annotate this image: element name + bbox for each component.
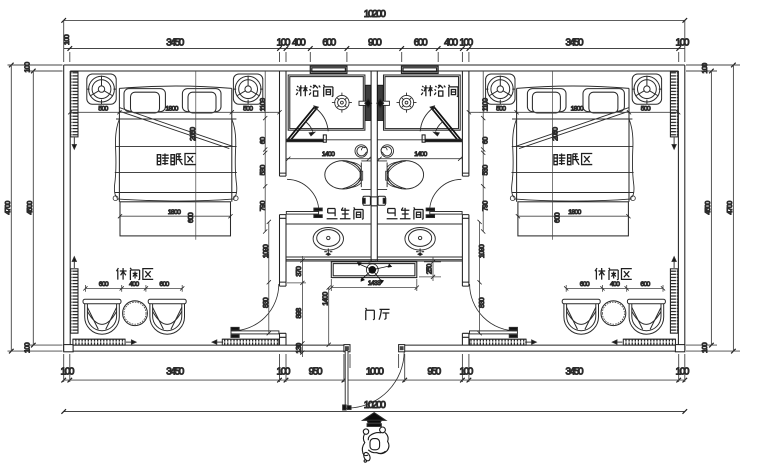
svg-text:500: 500	[496, 105, 506, 112]
svg-text:790: 790	[480, 201, 489, 212]
svg-text:4500: 4500	[25, 201, 34, 215]
svg-text:100: 100	[277, 37, 291, 48]
svg-text:2050: 2050	[188, 127, 197, 141]
svg-text:10200: 10200	[364, 400, 387, 411]
svg-text:100: 100	[62, 34, 71, 45]
svg-text:3450: 3450	[166, 37, 184, 48]
svg-text:600: 600	[159, 281, 169, 288]
svg-text:600: 600	[553, 212, 562, 223]
svg-text:3450: 3450	[166, 367, 184, 378]
svg-text:1090: 1090	[477, 244, 486, 258]
svg-text:1800: 1800	[165, 105, 178, 112]
svg-text:10200: 10200	[364, 9, 387, 20]
svg-text:400: 400	[292, 37, 306, 48]
svg-text:100: 100	[700, 63, 709, 74]
svg-text:100: 100	[23, 342, 32, 353]
svg-text:60: 60	[480, 137, 489, 144]
svg-text:400: 400	[610, 281, 620, 288]
svg-text:100: 100	[700, 342, 709, 353]
svg-text:100: 100	[23, 62, 32, 73]
svg-text:100: 100	[459, 367, 473, 378]
svg-text:4500: 4500	[703, 201, 712, 215]
svg-text:1800: 1800	[168, 209, 181, 216]
svg-text:530: 530	[258, 165, 267, 176]
svg-text:100: 100	[459, 37, 473, 48]
svg-text:1400: 1400	[321, 292, 330, 306]
svg-text:1090: 1090	[261, 244, 270, 258]
svg-text:4700: 4700	[3, 201, 12, 215]
svg-text:100: 100	[277, 367, 291, 378]
svg-text:790: 790	[258, 201, 267, 212]
svg-text:4700: 4700	[725, 201, 734, 215]
svg-text:500: 500	[98, 105, 108, 112]
svg-text:100: 100	[676, 37, 690, 48]
svg-text:600: 600	[640, 281, 650, 288]
svg-text:60: 60	[258, 137, 267, 144]
svg-text:900: 900	[368, 37, 382, 48]
svg-text:3450: 3450	[565, 367, 583, 378]
svg-text:400: 400	[129, 281, 139, 288]
svg-text:950: 950	[309, 367, 323, 378]
svg-text:1800: 1800	[568, 209, 581, 216]
svg-text:1100: 1100	[480, 98, 489, 111]
svg-text:500: 500	[641, 105, 651, 112]
svg-text:2050: 2050	[551, 127, 560, 141]
svg-text:400: 400	[444, 37, 458, 48]
svg-text:1400: 1400	[414, 151, 427, 158]
svg-text:1400: 1400	[322, 151, 335, 158]
svg-text:250: 250	[425, 264, 434, 275]
svg-text:600: 600	[414, 37, 428, 48]
svg-text:100: 100	[61, 367, 75, 378]
svg-text:370: 370	[294, 266, 303, 277]
svg-text:1800: 1800	[571, 105, 584, 112]
svg-text:3450: 3450	[565, 37, 583, 48]
svg-text:893: 893	[294, 308, 303, 319]
svg-text:1100: 1100	[258, 98, 267, 111]
svg-text:1433: 1433	[368, 280, 381, 287]
svg-text:950: 950	[427, 367, 441, 378]
svg-text:130: 130	[294, 343, 303, 354]
svg-text:500: 500	[243, 105, 253, 112]
svg-text:600: 600	[322, 37, 336, 48]
svg-text:830: 830	[477, 297, 486, 308]
svg-text:830: 830	[261, 297, 270, 308]
svg-text:600: 600	[99, 281, 109, 288]
svg-text:100: 100	[676, 367, 690, 378]
svg-text:1000: 1000	[366, 367, 384, 378]
svg-text:600: 600	[186, 212, 195, 223]
svg-text:600: 600	[580, 281, 590, 288]
svg-text:530: 530	[480, 165, 489, 176]
